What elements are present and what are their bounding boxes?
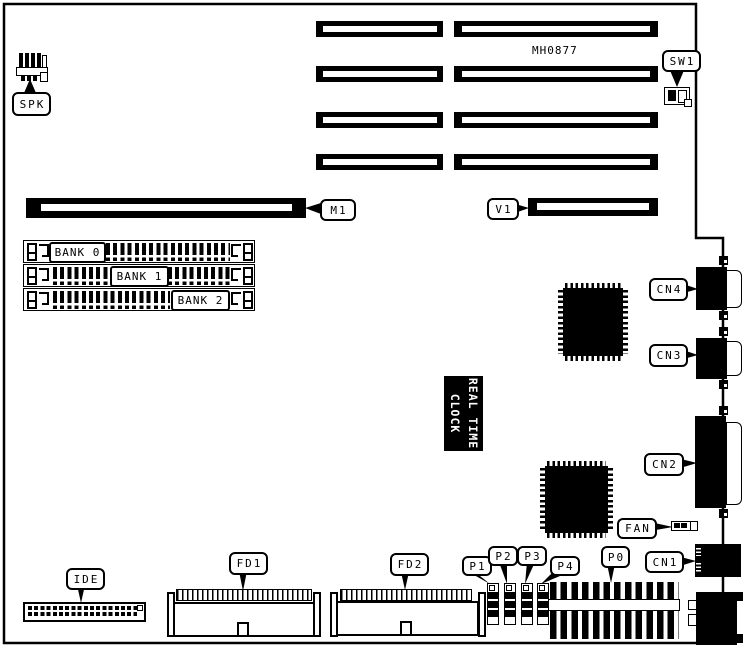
label-v1: V1 — [487, 198, 519, 220]
spk-pin — [37, 53, 41, 68]
pointer-m1 — [305, 203, 321, 214]
label-ide: IDE — [66, 568, 105, 590]
label-cn4: CN4 — [649, 278, 688, 301]
expansion-slot — [454, 112, 658, 128]
rtc-line1: REAL TIME — [464, 378, 481, 449]
v1-slot — [528, 198, 658, 216]
label-p0: P0 — [601, 546, 630, 568]
expansion-slot — [316, 66, 443, 82]
expansion-slot — [454, 21, 658, 37]
board-outline-layer — [0, 0, 744, 651]
motherboard-diagram: MH0877 BANK 0 — [0, 0, 744, 651]
label-fd1: FD1 — [229, 552, 268, 575]
qfp-chip — [545, 466, 608, 533]
p1-connector — [487, 583, 499, 625]
spk-pin — [31, 53, 35, 68]
label-fd2: FD2 — [390, 553, 429, 576]
label-m1: M1 — [320, 199, 356, 221]
board-code: MH0877 — [532, 44, 578, 57]
m1-slot — [26, 198, 306, 218]
real-time-clock: REAL TIME CLOCK — [444, 376, 483, 451]
spk-pin — [25, 53, 29, 68]
rtc-line2: CLOCK — [446, 394, 463, 434]
bank0-label: BANK 0 — [49, 242, 106, 263]
bank1-label: BANK 1 — [110, 266, 169, 287]
bank2-label: BANK 2 — [171, 290, 230, 311]
p3-connector — [521, 583, 533, 625]
label-cn2: CN2 — [644, 453, 684, 476]
qfp-chip — [563, 288, 623, 356]
pointer-spk — [24, 79, 36, 93]
label-p2: P2 — [488, 546, 518, 566]
label-cn1: CN1 — [645, 551, 684, 573]
label-spk: SPK — [12, 92, 51, 116]
expansion-slot — [454, 66, 658, 82]
spk-pin — [19, 53, 23, 68]
label-sw1: SW1 — [662, 50, 701, 72]
expansion-slot — [316, 21, 443, 37]
ide-connector — [23, 602, 146, 622]
p2-connector — [504, 583, 516, 625]
label-fan: FAN — [617, 518, 657, 539]
expansion-slot — [316, 154, 443, 170]
label-p3: P3 — [517, 546, 547, 566]
label-cn3: CN3 — [649, 344, 688, 367]
expansion-slot — [316, 112, 443, 128]
expansion-slot — [454, 154, 658, 170]
label-p4: P4 — [550, 556, 580, 576]
